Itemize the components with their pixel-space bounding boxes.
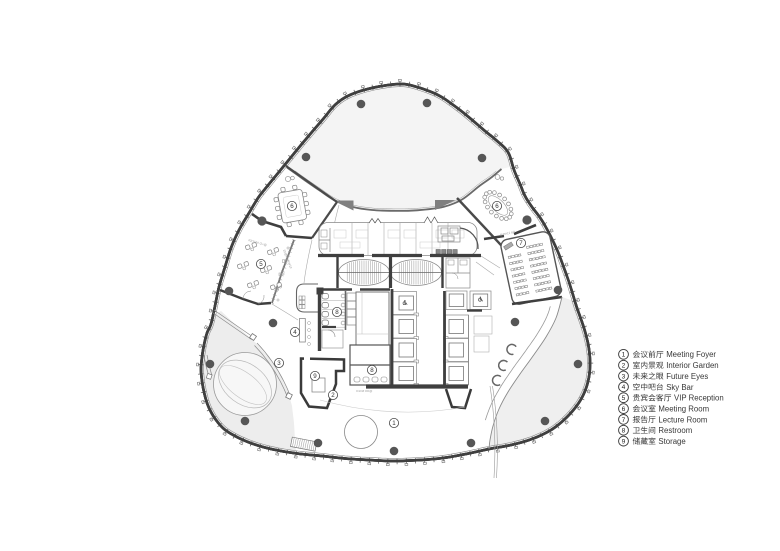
svg-text:4: 4 <box>622 384 626 391</box>
svg-text:Storage: Storage <box>658 437 685 446</box>
svg-text:Meeting Foyer: Meeting Foyer <box>666 350 716 359</box>
svg-text:5: 5 <box>259 261 263 268</box>
svg-text:1: 1 <box>622 352 626 359</box>
svg-text:1: 1 <box>392 420 396 427</box>
svg-text:8: 8 <box>622 428 626 435</box>
svg-text:Future Eyes: Future Eyes <box>666 372 708 381</box>
svg-text:VIP Reception: VIP Reception <box>674 394 724 403</box>
svg-text:9: 9 <box>313 373 317 380</box>
svg-text:6: 6 <box>495 203 499 210</box>
svg-text:2: 2 <box>331 392 335 399</box>
svg-text:5: 5 <box>622 395 626 402</box>
svg-text:O1O# #O@: O1O# #O@ <box>356 389 372 393</box>
svg-text:4: 4 <box>293 329 297 336</box>
svg-text:Restroom: Restroom <box>658 426 692 435</box>
svg-text:Lecture Room: Lecture Room <box>658 415 707 424</box>
svg-text:3: 3 <box>622 373 626 380</box>
svg-text:6: 6 <box>290 203 294 210</box>
svg-text:7: 7 <box>519 240 523 247</box>
svg-text:2: 2 <box>622 363 626 370</box>
svg-text:9: 9 <box>622 439 626 446</box>
svg-text:Interior Garden: Interior Garden <box>666 361 718 370</box>
svg-text:Sky Bar: Sky Bar <box>666 383 694 392</box>
svg-text:Meeting Room: Meeting Room <box>658 404 709 413</box>
svg-text:6: 6 <box>622 406 626 413</box>
svg-text:8: 8 <box>335 309 339 316</box>
svg-text:3: 3 <box>277 360 281 367</box>
svg-text:8: 8 <box>370 367 374 374</box>
svg-text:7: 7 <box>622 417 626 424</box>
